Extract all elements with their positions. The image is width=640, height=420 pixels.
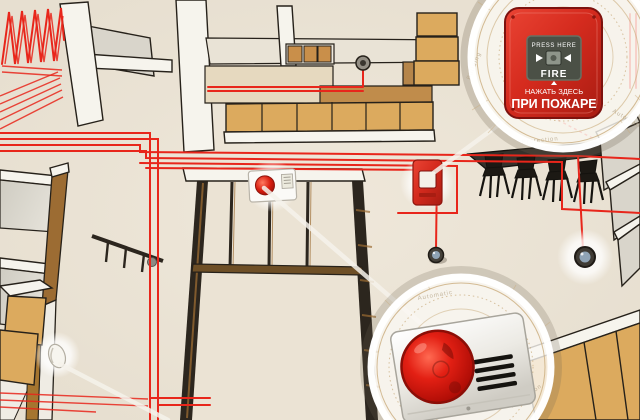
- cabinet-plinth: [224, 130, 435, 143]
- counter-dark-row: [320, 86, 432, 104]
- smoke-detector-top: [356, 56, 370, 70]
- press-here-label: PRESS HERE: [532, 43, 577, 49]
- fire-alarm-isometric-scene: Building Protection Automatic PRESS HERE…: [0, 0, 640, 420]
- fire-alarm-illustration: Building Protection Automatic PRESS HERE…: [0, 0, 640, 420]
- callout-lens-siren: Automatic Protection: [364, 270, 558, 420]
- instruction-line2: ПРИ ПОЖАРЕ: [511, 97, 596, 111]
- instruction-line1: НАЖАТЬ ЗДЕСЬ: [525, 87, 583, 96]
- smoke-detector-right: [557, 229, 613, 285]
- fire-label: FIRE: [541, 69, 568, 80]
- room-floor: [181, 182, 376, 420]
- cabinet-row: [226, 102, 433, 132]
- rail-knob: [148, 258, 157, 267]
- fire-call-point-icon: PRESS HERE FIRE НАЖАТЬ ЗДЕСЬ ПРИ ПОЖАРЕ: [505, 8, 602, 118]
- shelf-box: [304, 46, 317, 62]
- shelf-box: [318, 46, 331, 62]
- counter-back: [205, 66, 333, 103]
- shelf-box: [288, 46, 302, 62]
- shelf-tan-box: [0, 330, 38, 385]
